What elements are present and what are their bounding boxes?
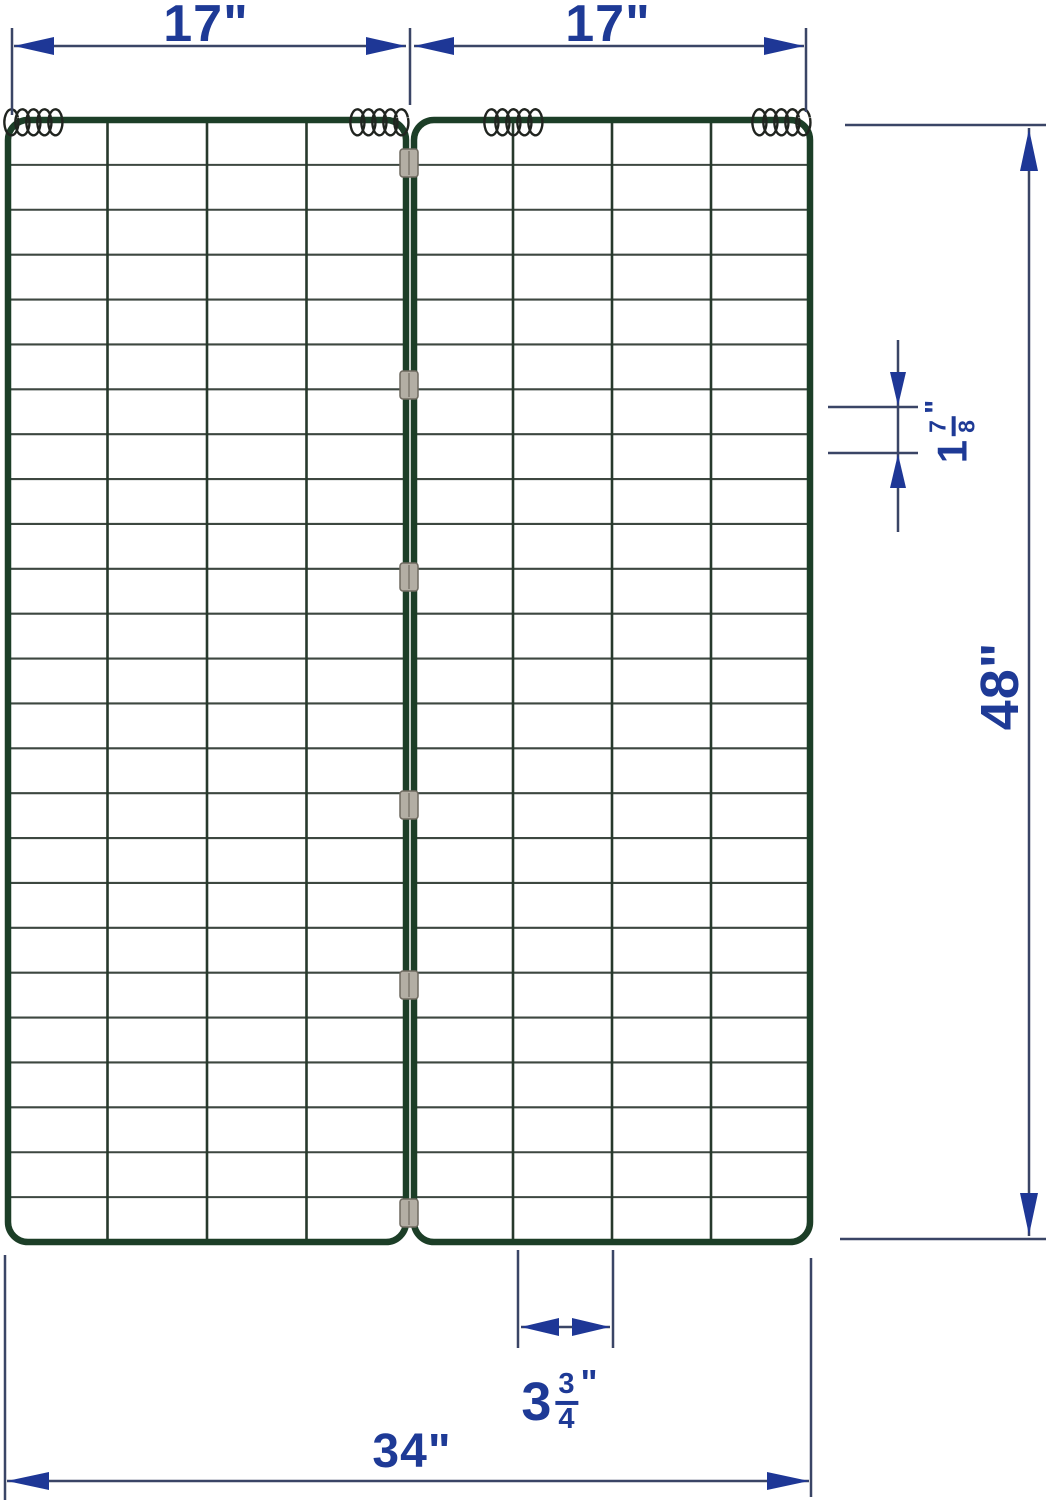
cell-width-fraction: 3 4 bbox=[555, 1371, 578, 1433]
dimension-arrowhead-icon bbox=[890, 372, 906, 406]
dimension-arrowhead-icon bbox=[767, 1472, 809, 1490]
cell-width-numerator: 3 bbox=[555, 1371, 578, 1405]
cell-height-numerator: 7 bbox=[928, 416, 956, 436]
dim-label-panel-width-left: 17" bbox=[163, 0, 249, 50]
trellis-dimension-diagram: 17" 17" 48" 1 7 8 " 3 3 4 " 34" bbox=[0, 0, 1048, 1500]
cell-height-whole: 1 bbox=[932, 439, 974, 463]
dim-label-total-height: 48" bbox=[973, 642, 1027, 731]
cell-width-whole: 3 bbox=[521, 1375, 552, 1429]
cell-width-unit: " bbox=[581, 1365, 599, 1401]
dim-label-total-width: 34" bbox=[372, 1428, 451, 1476]
cell-height-fraction: 7 8 bbox=[928, 416, 979, 436]
cell-width-denominator: 4 bbox=[558, 1405, 575, 1434]
dimension-arrowhead-icon bbox=[14, 37, 54, 55]
dimension-arrowhead-icon bbox=[1020, 1193, 1038, 1235]
trellis-graphic bbox=[0, 0, 1048, 1500]
dim-label-cell-height: 1 7 8 " bbox=[928, 399, 979, 463]
dimension-arrowhead-icon bbox=[414, 37, 454, 55]
dimension-arrowhead-icon bbox=[572, 1318, 610, 1336]
dimension-arrowhead-icon bbox=[521, 1318, 559, 1336]
dimension-arrowhead-icon bbox=[1020, 129, 1038, 171]
dimension-arrowhead-icon bbox=[890, 454, 906, 488]
dim-label-cell-width: 3 3 4 " bbox=[521, 1371, 598, 1433]
dimension-arrowhead-icon bbox=[7, 1472, 49, 1490]
cell-height-denominator: 8 bbox=[956, 419, 979, 433]
cell-height-unit: " bbox=[922, 399, 952, 414]
dim-label-panel-width-right: 17" bbox=[565, 0, 651, 50]
dimension-arrowhead-icon bbox=[764, 37, 804, 55]
dimension-arrowhead-icon bbox=[366, 37, 406, 55]
